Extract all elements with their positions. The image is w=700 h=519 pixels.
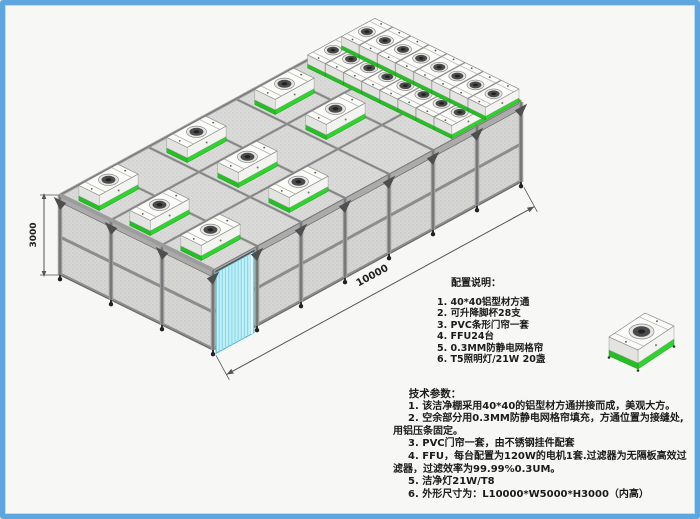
- config-note-item: 3. PVC条形门帘一套: [437, 320, 602, 332]
- tech-param-item: 4. FFU，每台配置为120W的电机1套.过滤器为无隔板高效过滤器，过滤效率为…: [393, 451, 691, 476]
- config-note-item: 1. 40*40铝型材方通: [437, 297, 602, 309]
- ffu-detail-icon: [608, 313, 676, 372]
- tech-param-item: 2. 空余部分用0.3MM防静电网格帘填充，方通位置为接缝处,用铝压条固定。: [393, 413, 691, 438]
- cleanroom-diagram-page: 300010000 配置说明： 1. 40*40铝型材方通 2. 可升降脚杯28…: [0, 0, 700, 519]
- config-notes-panel: 配置说明： 1. 40*40铝型材方通 2. 可升降脚杯28支 3. PVC条形…: [437, 278, 602, 366]
- config-notes-heading: 配置说明：: [451, 278, 602, 290]
- tech-param-item: 5. 洁净灯21W/T8: [393, 476, 691, 489]
- height-dimension: 3000: [29, 193, 60, 277]
- config-note-item: 4. FFU24台: [437, 331, 602, 343]
- config-note-item: 6. T5照明灯/21W 20盏: [437, 354, 602, 366]
- tech-param-item: 3. PVC门帘一套，由不锈钢挂件配套: [393, 438, 691, 451]
- tech-param-item: 1. 该洁净棚采用40*40的铝型材方通拼接而成，美观大方。: [393, 401, 691, 414]
- tech-param-item: 6. 外形尺寸为：L10000*W5000*H3000（内高）: [393, 489, 691, 502]
- height-dimension-label: 3000: [29, 222, 39, 247]
- ffu-unit: [609, 313, 674, 369]
- config-note-item: 5. 0.3MM防静电网格帘: [437, 343, 602, 355]
- config-note-item: 2. 可升降脚杯28支: [437, 308, 602, 320]
- tech-params-heading: 技术参数：: [393, 388, 691, 401]
- tech-params-panel: 技术参数： 1. 该洁净棚采用40*40的铝型材方通拼接而成，美观大方。 2. …: [393, 388, 691, 501]
